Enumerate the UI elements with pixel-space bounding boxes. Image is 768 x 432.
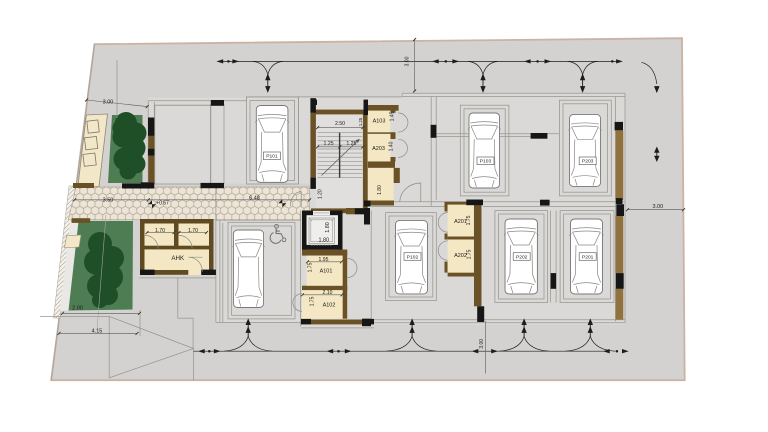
svg-text:3.00: 3.00 <box>404 56 410 66</box>
svg-text:3.00: 3.00 <box>479 339 485 349</box>
svg-text:1.20: 1.20 <box>318 189 324 199</box>
svg-text:1.25: 1.25 <box>324 141 334 147</box>
svg-text:6.48: 6.48 <box>249 196 260 202</box>
svg-text:A101: A101 <box>320 269 333 275</box>
svg-text:P202: P202 <box>516 254 528 260</box>
svg-text:3.00: 3.00 <box>103 99 114 105</box>
svg-text:1.70: 1.70 <box>188 228 198 234</box>
svg-text:3.00: 3.00 <box>652 204 663 210</box>
svg-text:A202: A202 <box>454 253 467 259</box>
svg-text:1.40: 1.40 <box>388 141 394 151</box>
svg-text:1.75: 1.75 <box>308 262 314 272</box>
svg-text:1.70: 1.70 <box>155 228 165 234</box>
svg-text:2.10: 2.10 <box>323 290 333 296</box>
svg-text:3.50: 3.50 <box>103 198 114 204</box>
svg-text:1.25: 1.25 <box>346 141 356 147</box>
svg-text:2.00: 2.00 <box>72 306 83 312</box>
svg-text:P201: P201 <box>582 254 594 260</box>
svg-text:+0.57: +0.57 <box>156 201 169 207</box>
svg-text:1.80: 1.80 <box>377 185 383 195</box>
svg-text:P203: P203 <box>582 159 594 165</box>
svg-text:1.80: 1.80 <box>325 222 331 233</box>
svg-text:A103: A103 <box>373 119 386 125</box>
svg-text:1.25: 1.25 <box>358 117 363 126</box>
svg-text:1.45: 1.45 <box>389 111 395 121</box>
svg-text:2.50: 2.50 <box>335 121 345 127</box>
svg-text:P102: P102 <box>407 254 419 260</box>
svg-text:A201: A201 <box>454 219 467 225</box>
svg-text:4.15: 4.15 <box>92 329 103 335</box>
svg-text:1.75: 1.75 <box>467 249 473 259</box>
svg-text:A102: A102 <box>323 303 336 309</box>
svg-text:1.75: 1.75 <box>310 296 316 306</box>
svg-text:1.95: 1.95 <box>319 257 329 263</box>
svg-text:A203: A203 <box>372 146 385 152</box>
svg-text:P103: P103 <box>480 159 492 165</box>
svg-text:1.80: 1.80 <box>319 237 330 243</box>
svg-text:AHK: AHK <box>171 255 185 262</box>
svg-text:P101: P101 <box>266 154 278 160</box>
svg-text:1.75: 1.75 <box>466 215 472 225</box>
